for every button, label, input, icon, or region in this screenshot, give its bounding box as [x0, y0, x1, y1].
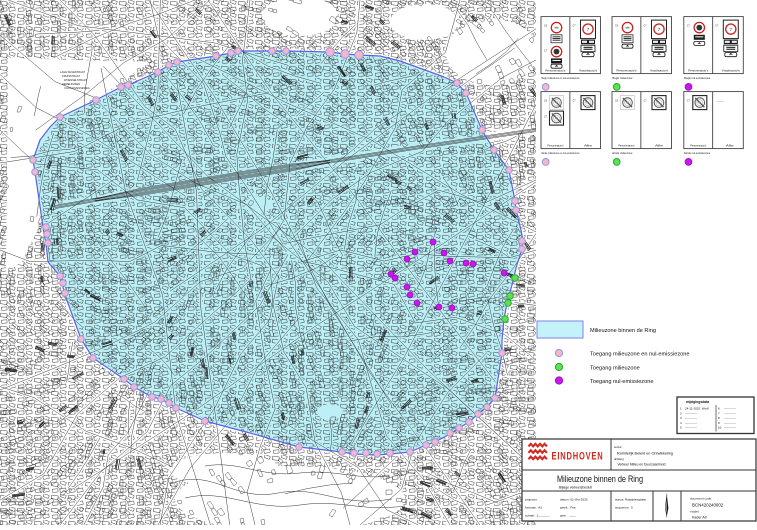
svg-text:10: 10: [718, 426, 722, 430]
svg-text:projectnr.: projectnr.: [525, 498, 538, 502]
svg-text:gew: ____: gew: ____: [560, 514, 576, 518]
svg-text:Personenauto's: Personenauto's: [546, 68, 567, 72]
svg-text:document code:: document code:: [690, 497, 712, 501]
svg-text:WOENSELSTRAAT: WOENSELSTRAAT: [64, 78, 87, 82]
svg-text:Vrachtauto's: Vrachtauto's: [722, 68, 741, 72]
svg-text:Alle: Alle: [584, 143, 593, 147]
svg-text:Ruimtelijk Beleid en Ontwikkel: Ruimtelijk Beleid en Ontwikkeling: [617, 451, 673, 456]
svg-text:-––––––-: -––––––-: [724, 421, 736, 425]
svg-text:HEMELRIJKEN: HEMELRIJKEN: [62, 82, 80, 86]
svg-text:Personenauto's: Personenauto's: [617, 68, 638, 72]
svg-text:Toegang milieuzone: Toegang milieuzone: [590, 366, 640, 372]
svg-text:Verkeer Milieu en Duurzaamheid: Verkeer Milieu en Duurzaamheid: [618, 463, 666, 467]
svg-text:-––––––-: -––––––-: [724, 416, 736, 420]
svg-text:datum: 01-Okt-2025: datum: 01-Okt-2025: [560, 498, 588, 502]
svg-text:Einde milieuzone en nul-emissi: Einde milieuzone en nul-emissiezone: [542, 151, 580, 155]
svg-text:Alle: Alle: [655, 143, 664, 147]
svg-text:-––––––-: -––––––-: [685, 416, 697, 420]
svg-text:EINDHOVEN: EINDHOVEN: [552, 451, 604, 463]
svg-text:BCN420240002: BCN420240002: [692, 503, 724, 508]
svg-text:Toegang milieuzone en nul-emis: Toegang milieuzone en nul-emissiezone: [590, 352, 690, 358]
svg-text:Kader A0: Kader A0: [692, 516, 707, 520]
svg-text:Milieuzone binnen de Ring: Milieuzone binnen de Ring: [590, 328, 656, 334]
svg-text:schaal: 1:______: schaal: 1:______: [525, 514, 550, 518]
svg-text:sequence: 5: sequence: 5: [615, 506, 633, 510]
svg-text:Alle: Alle: [726, 143, 735, 147]
svg-text:Einde nul-emissiezone: Einde nul-emissiezone: [684, 151, 710, 155]
svg-text:afdeling: afdeling: [614, 457, 624, 461]
svg-text:wijzigingsdata: wijzigingsdata: [685, 400, 709, 404]
svg-text:formaat: A3: formaat: A3: [525, 506, 542, 510]
svg-text:Vrachtauto's: Vrachtauto's: [579, 68, 598, 72]
svg-text:-––––––-: -––––––-: [724, 407, 736, 411]
svg-text:Personenauto's: Personenauto's: [548, 143, 564, 147]
svg-text:sector:: sector:: [614, 445, 623, 449]
svg-text:KRUISSTRAAT: KRUISSTRAAT: [62, 74, 80, 78]
svg-text:-––––––-: -––––––-: [685, 411, 697, 415]
svg-text:Begin milieuzone: Begin milieuzone: [613, 76, 633, 80]
svg-text:Milieuzone binnen de Ring: Milieuzone binnen de Ring: [557, 474, 643, 485]
svg-text:model:: model:: [690, 510, 699, 514]
svg-text:———: ———: [717, 101, 725, 104]
svg-text:24-11-2025 Wvdl: 24-11-2025 Wvdl: [685, 407, 709, 411]
svg-text:getek: Fria: getek: Fria: [560, 506, 576, 510]
svg-text:LAGE SILVENTRAAT: LAGE SILVENTRAAT: [60, 70, 85, 74]
svg-text:status: Raadpleegbaar: status: Raadpleegbaar: [615, 498, 646, 502]
svg-text:Einde milieuzone: Einde milieuzone: [613, 151, 633, 155]
svg-text:Begin milieuzone en nul-emissi: Begin milieuzone en nul-emissiezone: [542, 76, 580, 80]
svg-text:Toegang nul-emissiezone: Toegang nul-emissiezone: [590, 379, 653, 385]
svg-text:Begin nul-emissiezone: Begin nul-emissiezone: [684, 76, 710, 80]
svg-text:Personenauto's: Personenauto's: [688, 68, 709, 72]
svg-text:Personenauto's: Personenauto's: [619, 143, 635, 147]
svg-text:-––––––-: -––––––-: [724, 411, 736, 415]
svg-text:Vrachtauto's: Vrachtauto's: [650, 68, 669, 72]
svg-text:Bijlage verkeersbesluit: Bijlage verkeersbesluit: [559, 485, 593, 490]
svg-text:VLOKHOVENSEWEG: VLOKHOVENSEWEG: [64, 86, 90, 90]
svg-text:-––––––-: -––––––-: [685, 426, 697, 430]
svg-text:-––––––-: -––––––-: [724, 426, 736, 430]
svg-text:Personenauto's: Personenauto's: [690, 143, 706, 147]
svg-text:-––––––-: -––––––-: [685, 421, 697, 425]
